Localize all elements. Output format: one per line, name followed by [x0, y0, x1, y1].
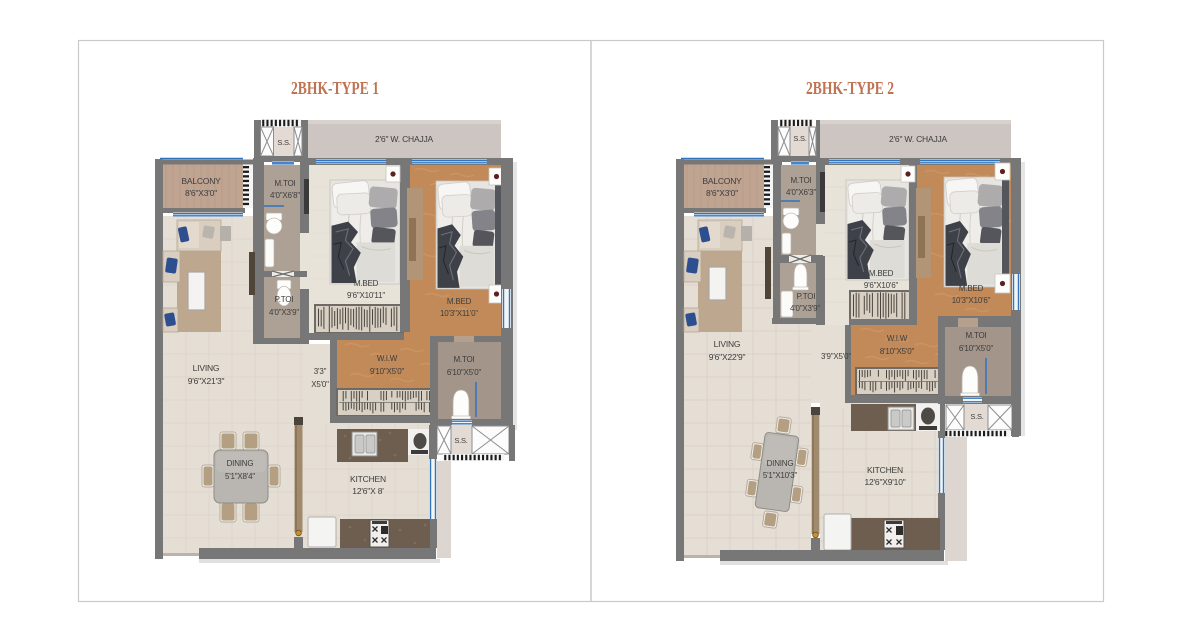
svg-text:KITCHEN: KITCHEN	[350, 474, 386, 484]
svg-text:M.TOI: M.TOI	[965, 331, 986, 340]
svg-text:3'3": 3'3"	[314, 367, 327, 376]
svg-text:M.BED: M.BED	[959, 284, 984, 293]
svg-text:9'6"X10'6": 9'6"X10'6"	[864, 281, 899, 290]
svg-text:S.S.: S.S.	[277, 138, 290, 147]
svg-text:DINING: DINING	[767, 459, 794, 468]
svg-text:S.S.: S.S.	[793, 134, 806, 143]
svg-text:KITCHEN: KITCHEN	[867, 465, 903, 475]
svg-text:10'3"X10'6": 10'3"X10'6"	[952, 296, 991, 305]
svg-text:8'10"X5'0": 8'10"X5'0"	[880, 347, 915, 356]
svg-text:BALCONY: BALCONY	[181, 176, 221, 186]
svg-text:4'0"X6'8": 4'0"X6'8"	[270, 191, 300, 200]
svg-text:M.BED: M.BED	[869, 269, 894, 278]
svg-text:9'6"X21'3": 9'6"X21'3"	[188, 376, 225, 386]
svg-text:3'9"X5'0": 3'9"X5'0"	[821, 352, 851, 361]
svg-text:M.TOI: M.TOI	[790, 176, 811, 185]
svg-text:5'1"X10'3": 5'1"X10'3"	[763, 471, 798, 480]
svg-text:M.BED: M.BED	[354, 279, 379, 288]
svg-text:2'6" W. CHAJJA: 2'6" W. CHAJJA	[889, 134, 948, 144]
svg-text:S.S.: S.S.	[970, 412, 983, 421]
svg-text:8'6"X3'0": 8'6"X3'0"	[185, 188, 217, 198]
svg-text:M.TOI: M.TOI	[274, 179, 295, 188]
svg-text:BALCONY: BALCONY	[702, 176, 742, 186]
svg-text:6'10"X5'0": 6'10"X5'0"	[447, 368, 482, 377]
svg-text:4'0"X6'3": 4'0"X6'3"	[786, 188, 816, 197]
svg-text:M.TOI: M.TOI	[453, 355, 474, 364]
svg-text:12'6"X 8': 12'6"X 8'	[352, 486, 384, 496]
svg-text:9'6"X10'11": 9'6"X10'11"	[347, 291, 385, 300]
svg-text:9'6"X22'9": 9'6"X22'9"	[709, 352, 746, 362]
svg-text:5'1"X8'4": 5'1"X8'4"	[225, 472, 255, 481]
svg-text:LIVING: LIVING	[193, 363, 220, 373]
svg-text:12'6"X9'10": 12'6"X9'10"	[864, 477, 905, 487]
svg-text:W.I.W: W.I.W	[377, 354, 398, 363]
svg-text:P.TOI: P.TOI	[275, 295, 294, 304]
svg-text:S.S.: S.S.	[454, 436, 467, 445]
svg-text:9'10"X5'0": 9'10"X5'0"	[370, 367, 405, 376]
svg-text:2BHK-TYPE 1: 2BHK-TYPE 1	[291, 78, 379, 98]
svg-text:X5'0": X5'0"	[311, 380, 329, 389]
svg-text:P.TOI: P.TOI	[797, 292, 816, 301]
svg-text:M.BED: M.BED	[447, 297, 472, 306]
svg-text:DINING: DINING	[227, 459, 254, 468]
svg-text:4'0"X3'9": 4'0"X3'9"	[790, 304, 820, 313]
svg-text:8'6"X3'0": 8'6"X3'0"	[706, 188, 738, 198]
svg-text:2BHK-TYPE 2: 2BHK-TYPE 2	[806, 78, 894, 98]
svg-text:4'0"X3'9": 4'0"X3'9"	[269, 308, 299, 317]
svg-text:6'10"X5'0": 6'10"X5'0"	[959, 344, 994, 353]
svg-text:LIVING: LIVING	[714, 339, 741, 349]
svg-text:2'6" W. CHAJJA: 2'6" W. CHAJJA	[375, 134, 434, 144]
svg-text:W.I.W: W.I.W	[887, 334, 908, 343]
svg-text:10'3"X11'0": 10'3"X11'0"	[440, 309, 478, 318]
